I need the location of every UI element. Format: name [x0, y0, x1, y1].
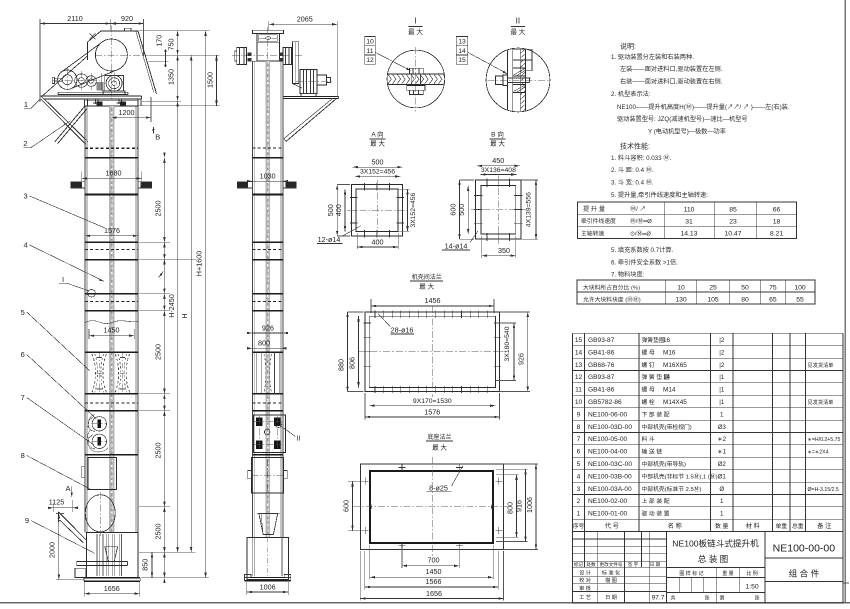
svg-text:2065: 2065: [297, 15, 313, 24]
svg-text:NE100-00-00: NE100-00-00: [773, 543, 836, 555]
svg-text:1: 1: [720, 498, 724, 505]
svg-text:NE100-05-00: NE100-05-00: [588, 436, 628, 443]
svg-text:最 大: 最 大: [432, 443, 447, 452]
svg-text:校 对: 校 对: [579, 576, 591, 584]
svg-text:2500: 2500: [154, 344, 163, 360]
svg-text:3: 3: [24, 191, 28, 200]
svg-text:4: 4: [577, 473, 581, 480]
svg-text:材 料: 材 料: [746, 522, 760, 530]
svg-text:110: 110: [684, 206, 695, 213]
svg-text:14: 14: [458, 48, 466, 55]
svg-text:1500: 1500: [205, 72, 214, 88]
svg-text:NE100-01-00: NE100-01-00: [588, 511, 628, 518]
svg-text:2110: 2110: [67, 14, 82, 23]
svg-text:第: 第: [719, 595, 724, 602]
svg-text:M16X65: M16X65: [663, 362, 687, 369]
svg-text:∗1: ∗1: [717, 449, 726, 456]
svg-text:3X136=408: 3X136=408: [481, 167, 516, 174]
svg-text:8: 8: [21, 451, 25, 460]
svg-text:6. 牵引件安全系数 >1倍.: 6. 牵引件安全系数 >1倍.: [611, 258, 678, 266]
svg-text:见发货清单: 见发货清单: [808, 361, 834, 369]
svg-text:重 量: 重 量: [722, 570, 733, 577]
svg-text:|2: |2: [719, 337, 725, 344]
svg-text:螺 栓: 螺 栓: [642, 398, 655, 406]
svg-text:NE100-03D-00: NE100-03D-00: [588, 424, 632, 431]
svg-text:组 合 件: 组 合 件: [789, 568, 820, 579]
svg-text:最 大: 最 大: [370, 139, 385, 148]
svg-text:底座法兰: 底座法兰: [427, 433, 451, 441]
svg-text:⊙/Ⓜ═Ø: ⊙/Ⓜ═Ø: [630, 229, 651, 237]
svg-text:最 大: 最 大: [419, 282, 434, 291]
svg-text:NE100-06-00: NE100-06-00: [588, 411, 628, 418]
svg-text:7: 7: [577, 436, 581, 443]
svg-text:6: 6: [577, 449, 581, 456]
svg-text:14: 14: [575, 349, 583, 356]
svg-text:设 计: 设 计: [579, 569, 591, 577]
svg-text:10: 10: [366, 39, 374, 46]
svg-text:9: 9: [577, 411, 581, 418]
svg-text:GB93-87: GB93-87: [588, 374, 615, 381]
svg-text:65: 65: [769, 297, 777, 304]
svg-text:单重: 单重: [775, 522, 787, 530]
svg-text:880: 880: [336, 359, 345, 371]
svg-text:600: 600: [448, 204, 457, 216]
svg-text:14-ø14: 14-ø14: [445, 242, 468, 251]
svg-text:中部机壳(非标节 1.5Ⓜ),1 (Ⓜ): 中部机壳(非标节 1.5Ⓜ),1 (Ⓜ): [642, 472, 718, 480]
svg-text:NE100板链斗式提升机: NE100板链斗式提升机: [672, 538, 759, 549]
svg-text:916: 916: [514, 500, 523, 512]
svg-text:标记: 标记: [574, 561, 584, 568]
svg-text:II: II: [516, 17, 520, 26]
svg-text:28-ø16: 28-ø16: [391, 326, 414, 335]
svg-text:1030: 1030: [260, 171, 276, 180]
svg-text:3X180=540: 3X180=540: [504, 326, 511, 361]
svg-text:NE100-04-00: NE100-04-00: [588, 449, 628, 456]
svg-text:1566: 1566: [426, 577, 442, 586]
svg-text:NE100-03C-00: NE100-03C-00: [588, 461, 632, 468]
svg-text:|2: |2: [719, 362, 725, 369]
svg-text:I: I: [62, 275, 64, 284]
svg-text:1. 料斗容积: 0.033 Ⓜ.: 1. 料斗容积: 0.033 Ⓜ.: [611, 154, 671, 162]
svg-text:下 部 装 配: 下 部 装 配: [642, 410, 670, 418]
svg-text:1680: 1680: [106, 168, 122, 177]
svg-text:张: 张: [704, 595, 709, 602]
svg-text:1350: 1350: [166, 69, 175, 85]
svg-text:14: 14: [663, 374, 671, 381]
svg-text:图 样 标 记: 图 样 标 记: [679, 570, 703, 577]
svg-text:更改文件号: 更改文件号: [600, 561, 623, 568]
svg-text:牵引件线速度: 牵引件线速度: [581, 217, 616, 225]
svg-text:NE100-03A-00: NE100-03A-00: [588, 486, 632, 493]
svg-text:Ø2: Ø2: [718, 461, 727, 468]
svg-text:A: A: [65, 484, 70, 493]
svg-text:驱动装置型号: JZQ(减速机型号)—速比—机型号: 驱动装置型号: JZQ(减速机型号)—速比—机型号: [617, 115, 748, 123]
svg-text:13: 13: [575, 362, 583, 369]
svg-text:500: 500: [372, 157, 384, 166]
svg-text:3X152=456: 3X152=456: [360, 169, 395, 176]
svg-text:GB41-86: GB41-86: [588, 387, 615, 394]
svg-text:97.7: 97.7: [652, 595, 665, 602]
svg-text:张: 张: [754, 595, 759, 602]
svg-text:|1: |1: [719, 399, 725, 406]
svg-text:920: 920: [121, 14, 133, 23]
svg-text:左装——面对进料口,驱动装置在左侧.: 左装——面对进料口,驱动装置在左侧.: [620, 65, 723, 73]
svg-text:螺 母: 螺 母: [642, 386, 655, 394]
svg-text:大块料所占百分比 (%): 大块料所占百分比 (%): [583, 283, 640, 291]
svg-text:GB5782-86: GB5782-86: [588, 399, 622, 406]
svg-text:9: 9: [25, 516, 29, 525]
svg-text:右装——面对进料口,驱动装置在右侧.: 右装——面对进料口,驱动装置在右侧.: [620, 78, 723, 86]
svg-text:M14X45: M14X45: [663, 399, 687, 406]
svg-text:2. 斗 距: 0.4 Ⓜ.: 2. 斗 距: 0.4 Ⓜ.: [611, 166, 654, 174]
svg-text:800: 800: [258, 338, 270, 347]
svg-text:输 送 链: 输 送 链: [642, 448, 663, 456]
svg-text:11: 11: [575, 387, 582, 394]
svg-text:共: 共: [670, 595, 675, 602]
svg-text:8.21: 8.21: [770, 231, 783, 238]
svg-text:上 部 装 配: 上 部 装 配: [642, 497, 670, 505]
svg-text:5: 5: [577, 461, 581, 468]
svg-text:4X139=556: 4X139=556: [526, 192, 533, 227]
svg-text:∗=H/0.2+5.75: ∗=H/0.2+5.75: [808, 437, 841, 443]
svg-text:1006: 1006: [260, 583, 276, 592]
svg-text:1576: 1576: [104, 226, 120, 235]
svg-text:Ⓜ/Ⓜ═Ø: Ⓜ/Ⓜ═Ø: [630, 217, 652, 225]
svg-text:|2: |2: [719, 349, 725, 356]
svg-text:750: 750: [167, 39, 176, 51]
svg-text:450: 450: [492, 156, 504, 165]
svg-text:∗2: ∗2: [717, 436, 726, 443]
svg-text:400: 400: [334, 204, 343, 216]
svg-text:15: 15: [575, 337, 583, 344]
svg-text:850: 850: [141, 559, 150, 571]
svg-text:Y (电动机型号)—极数—功率: Y (电动机型号)—极数—功率: [648, 127, 726, 135]
svg-text:5: 5: [21, 308, 25, 317]
svg-text:|1: |1: [719, 387, 725, 394]
svg-text:GB68-76: GB68-76: [588, 362, 615, 369]
svg-text:926: 926: [517, 353, 526, 365]
svg-text:2: 2: [23, 139, 27, 148]
svg-text:50: 50: [741, 285, 749, 292]
svg-text:2000: 2000: [48, 542, 57, 558]
svg-text:料 斗: 料 斗: [642, 435, 655, 443]
svg-text:NE100-03B-00: NE100-03B-00: [588, 473, 632, 480]
svg-text:500: 500: [457, 204, 466, 216]
svg-text:8: 8: [577, 424, 581, 431]
svg-text:B 向: B 向: [491, 130, 504, 139]
svg-text:3. 斗 宽: 0.4 Ⓜ.: 3. 斗 宽: 0.4 Ⓜ.: [611, 179, 654, 187]
svg-text:13: 13: [458, 39, 466, 46]
svg-text:9X170=1530: 9X170=1530: [413, 398, 452, 405]
svg-text:见发货清单: 见发货清单: [808, 398, 834, 406]
svg-text:M16: M16: [663, 349, 676, 356]
svg-text:H: H: [180, 313, 189, 318]
svg-text:驱 动 装 置: 驱 动 装 置: [642, 510, 670, 518]
svg-text:中部机壳(带导轨): 中部机壳(带导轨): [642, 460, 687, 468]
svg-text:14.13: 14.13: [680, 231, 697, 238]
svg-text:1: 1: [577, 511, 581, 518]
svg-text:标 准 化: 标 准 化: [602, 569, 620, 577]
svg-text:7. 物料块度:: 7. 物料块度:: [611, 271, 645, 279]
svg-text:3X152=456: 3X152=456: [410, 193, 417, 228]
svg-text:6: 6: [21, 350, 25, 359]
svg-text:1200: 1200: [119, 108, 135, 117]
svg-text:55: 55: [796, 297, 804, 304]
svg-text:A 向: A 向: [371, 130, 383, 139]
svg-text:800: 800: [505, 502, 514, 514]
svg-text:机壳间法兰: 机壳间法兰: [412, 273, 442, 281]
svg-text:12: 12: [366, 57, 374, 64]
svg-text:NE100-02-00: NE100-02-00: [588, 498, 628, 505]
svg-text:最 大: 最 大: [510, 27, 525, 36]
svg-text:GB93-87: GB93-87: [588, 337, 615, 344]
svg-text:10: 10: [677, 285, 685, 292]
svg-text:350: 350: [498, 246, 510, 255]
svg-text:NE100——提升机高度H(Ⓜ)——提升量(↗↗/ ↗: NE100——提升机高度H(Ⓜ)——提升量(↗↗/ ↗ )——左(右)装.: [617, 103, 790, 111]
svg-text:4: 4: [24, 241, 28, 250]
svg-text:7: 7: [21, 393, 25, 402]
svg-text:105: 105: [707, 297, 719, 304]
svg-text:M14: M14: [663, 387, 676, 394]
svg-text:总重: 总重: [792, 522, 804, 530]
svg-text:代 号: 代 号: [605, 522, 619, 530]
svg-text:16: 16: [663, 337, 671, 344]
svg-text:1450: 1450: [104, 326, 120, 335]
svg-text:技术性能:: 技术性能:: [620, 142, 650, 151]
svg-text:2500: 2500: [154, 201, 163, 217]
svg-text:1006: 1006: [525, 497, 534, 513]
svg-text:数 量: 数 量: [715, 522, 728, 530]
svg-text:1: 1: [24, 100, 28, 109]
svg-text:10.47: 10.47: [724, 231, 741, 238]
svg-text:1:50: 1:50: [745, 584, 758, 591]
svg-text:∗=∗2X4: ∗=∗2X4: [808, 450, 829, 456]
svg-text:66: 66: [773, 206, 781, 213]
svg-text:1576: 1576: [424, 407, 440, 416]
svg-text:|1: |1: [719, 374, 725, 381]
svg-text:10: 10: [575, 399, 583, 406]
svg-text:5. 提升量,牵引件线速度和主轴转速:: 5. 提升量,牵引件线速度和主轴转速:: [611, 191, 708, 199]
svg-text:名 称: 名 称: [668, 522, 682, 530]
svg-text:I: I: [414, 17, 416, 26]
svg-text:签 字: 签 字: [628, 561, 639, 567]
svg-text:Ø1: Ø1: [718, 473, 727, 480]
svg-text:18: 18: [773, 218, 781, 225]
svg-text:螺 母: 螺 母: [642, 348, 655, 356]
svg-text:31: 31: [685, 218, 693, 225]
svg-text:5. 填充系数按 0.7计算.: 5. 填充系数按 0.7计算.: [611, 246, 674, 254]
svg-text:审 核: 审 核: [579, 584, 591, 592]
svg-text:85: 85: [729, 206, 737, 213]
svg-text:B: B: [155, 133, 160, 142]
svg-text:提 升 量: 提 升 量: [583, 205, 605, 213]
svg-text:日 期: 日 期: [605, 594, 617, 601]
svg-text:总 装 图: 总 装 图: [698, 553, 729, 564]
svg-text:备 注: 备 注: [817, 522, 831, 530]
svg-text:说明:: 说明:: [620, 42, 636, 51]
svg-text:1456: 1456: [425, 296, 441, 305]
svg-text:15: 15: [458, 57, 466, 64]
svg-text:130: 130: [675, 297, 687, 304]
svg-text:中部机壳(标准节 2.5Ⓜ): 中部机壳(标准节 2.5Ⓜ): [642, 485, 702, 493]
svg-text:80: 80: [741, 297, 749, 304]
svg-text:1. 驱动装置分左装和右装两种.: 1. 驱动装置分左装和右装两种.: [611, 53, 694, 61]
svg-text:1125: 1125: [49, 498, 64, 507]
svg-text:工 艺: 工 艺: [579, 594, 591, 601]
svg-text:11: 11: [366, 48, 373, 55]
svg-text:允许大块料块度 (ⓂⓂ): 允许大块料块度 (ⓂⓂ): [583, 295, 641, 303]
svg-text:12-ø14: 12-ø14: [318, 235, 341, 244]
svg-text:170: 170: [154, 35, 163, 47]
svg-text:806: 806: [347, 357, 356, 369]
svg-text:处数: 处数: [586, 561, 596, 568]
svg-text:2: 2: [577, 498, 581, 505]
svg-text:700: 700: [428, 556, 440, 565]
svg-text:1450: 1450: [426, 567, 442, 576]
svg-text:螺 钉: 螺 钉: [642, 361, 655, 369]
svg-text:2500: 2500: [154, 443, 163, 459]
svg-text:中部机壳(带检视门): 中部机壳(带检视门): [642, 423, 692, 431]
svg-text:主轴转速: 主轴转速: [581, 229, 604, 237]
svg-text:弹簧垫圈: 弹簧垫圈: [642, 336, 665, 344]
svg-text:400: 400: [372, 237, 384, 246]
svg-text:25: 25: [709, 285, 717, 292]
svg-text:Ø: Ø: [719, 486, 724, 493]
svg-text:最 大: 最 大: [408, 27, 423, 36]
svg-text:600: 600: [341, 500, 350, 512]
svg-text:12: 12: [575, 374, 583, 381]
svg-text:926: 926: [262, 323, 274, 332]
svg-text:75: 75: [769, 285, 777, 292]
svg-text:1656: 1656: [426, 589, 442, 598]
svg-text:2. 机型表示法:: 2. 机型表示法:: [611, 90, 651, 98]
svg-text:最 大: 最 大: [490, 139, 505, 148]
svg-text:H-2450: H-2450: [167, 294, 176, 318]
svg-text:序号: 序号: [573, 522, 585, 530]
svg-text:8-ø25: 8-ø25: [429, 483, 448, 492]
svg-text:II: II: [297, 436, 301, 443]
svg-text:1: 1: [720, 411, 724, 418]
svg-text:3: 3: [577, 486, 581, 493]
svg-text:1: 1: [720, 511, 724, 518]
svg-text:2500: 2500: [154, 524, 163, 540]
svg-text:Ø=H-3.15/2.5: Ø=H-3.15/2.5: [808, 487, 839, 493]
svg-text:描 图: 描 图: [605, 576, 617, 584]
svg-text:Ø3: Ø3: [718, 424, 727, 431]
svg-text:1656: 1656: [104, 584, 120, 593]
svg-text:100: 100: [794, 285, 806, 292]
svg-text:Ⓜ/ ↗: Ⓜ/ ↗: [630, 205, 646, 213]
svg-text:H+1600: H+1600: [194, 251, 203, 276]
svg-text:比 例: 比 例: [746, 570, 757, 577]
svg-text:23: 23: [729, 218, 737, 225]
svg-text:GB41-86: GB41-86: [588, 349, 615, 356]
